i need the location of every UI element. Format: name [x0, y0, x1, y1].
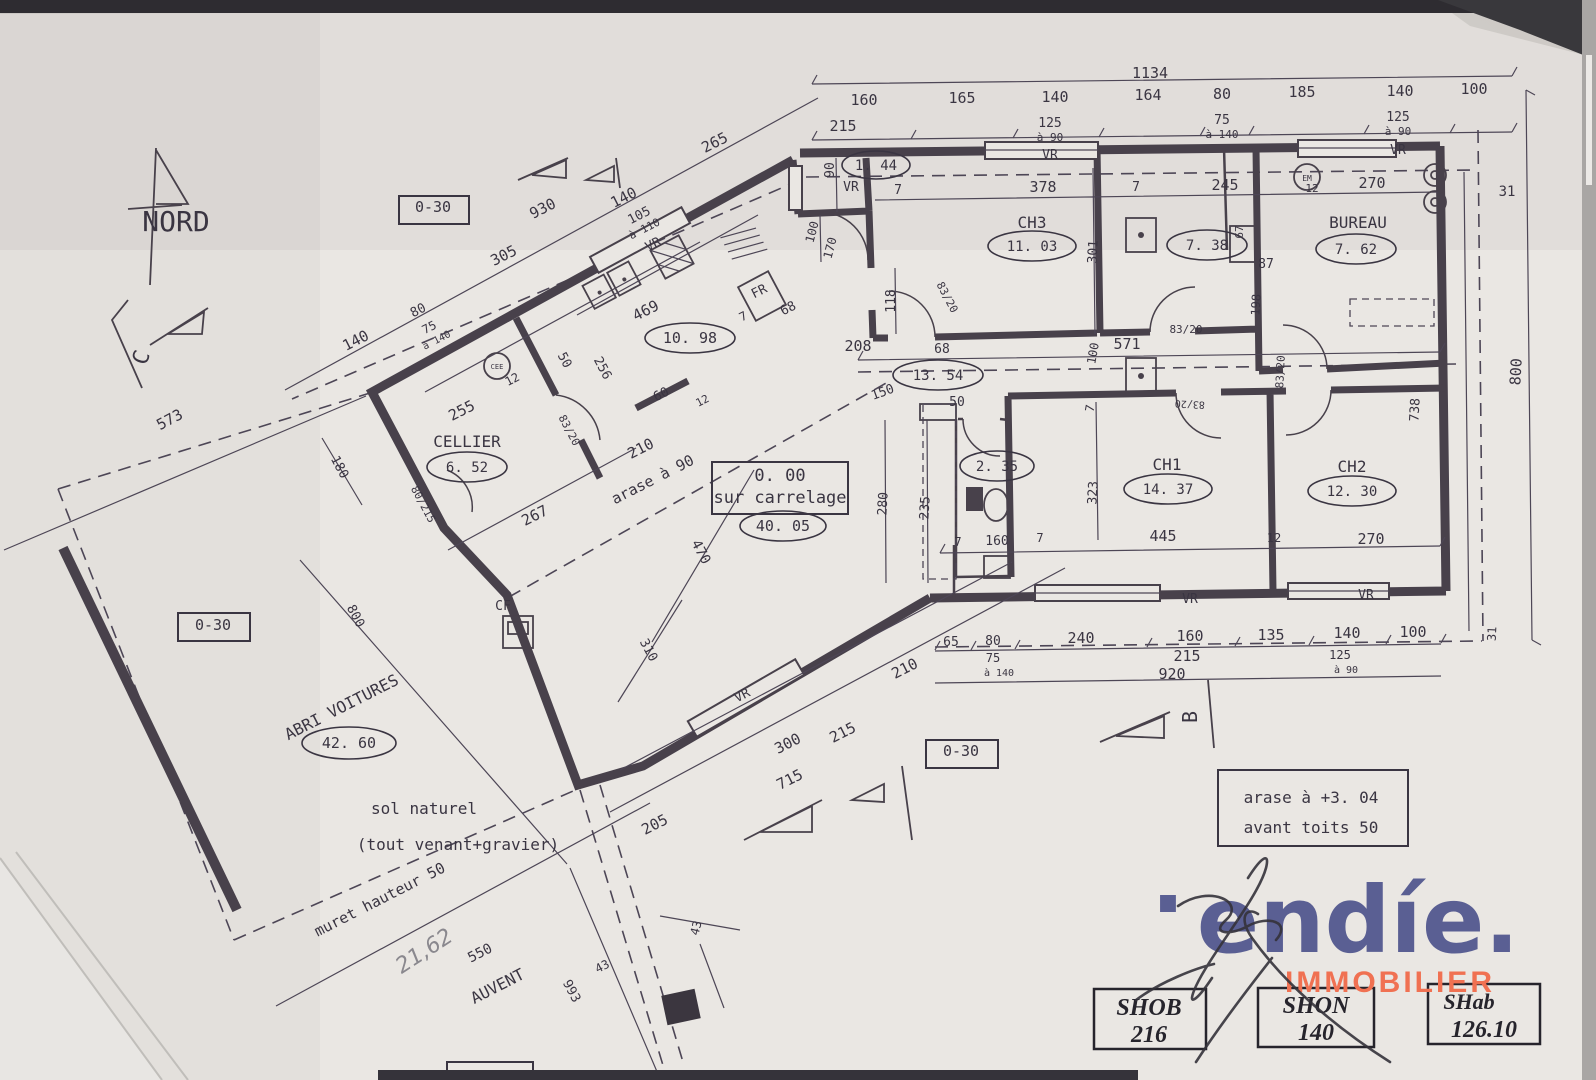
section-b-label: B	[1178, 711, 1202, 723]
dim-50-hall: 50	[949, 395, 965, 410]
room-bath-area: 7. 38	[1186, 238, 1228, 254]
dim-90: 90	[823, 162, 838, 178]
dim-920: 920	[1158, 665, 1185, 683]
room-bureau: BUREAU	[1329, 213, 1387, 232]
photo-edge-top	[0, 0, 1510, 13]
scanned-floor-plan-photo: 113416016514016480185140100215125à 9075à…	[0, 0, 1596, 1080]
photo-edge-bottom	[378, 1070, 1138, 1080]
win-b1-75: 75	[986, 651, 1000, 665]
room-cellier-area: 6. 52	[446, 460, 488, 476]
shob-label: SHOB	[1116, 995, 1181, 1021]
room-entry-area: 1. 44	[855, 158, 897, 174]
room-bureau-area: 7. 62	[1335, 242, 1377, 258]
win-top1-125: 125	[1038, 116, 1061, 131]
dim-235: 235	[917, 496, 933, 520]
door-8320-bath: 83/20	[1169, 323, 1202, 336]
dim-738: 738	[1407, 398, 1423, 422]
dim-67: 67	[1233, 225, 1246, 238]
dim-270-ch2: 270	[1357, 530, 1384, 548]
bottom-vr2: VR	[1358, 588, 1374, 603]
dim-270-bureau: 270	[1358, 174, 1385, 192]
room-ch2: CH2	[1338, 457, 1367, 476]
dim-top-215: 215	[829, 117, 856, 135]
win-top3-a90: à 90	[1385, 125, 1412, 138]
dim-140-bottom: 140	[1333, 624, 1360, 642]
note-sol: sol naturel	[371, 799, 477, 818]
win-top2-75: 75	[1214, 113, 1230, 128]
dim-100-bottom: 100	[1399, 623, 1426, 641]
dim-240: 240	[1067, 629, 1094, 647]
dim-top-160: 160	[850, 91, 877, 109]
dim-68-hall: 68	[934, 342, 950, 357]
room-ch1: CH1	[1153, 455, 1182, 474]
sym-cee-label: CEE	[491, 363, 504, 371]
dim-215-bottom: 215	[1173, 647, 1200, 665]
dim-top-140a: 140	[1041, 88, 1068, 106]
dim-87: 87	[1258, 257, 1274, 272]
room-wc-area: 2. 35	[976, 459, 1018, 475]
dim-160-bottom: 160	[1176, 627, 1203, 645]
window-porch	[789, 166, 802, 210]
room-kitchen-area: 10. 98	[663, 329, 717, 347]
dim-280: 280	[875, 492, 891, 516]
bottom-vr1: VR	[1182, 592, 1198, 607]
door-8320-bureau: 83/20	[1273, 355, 1288, 389]
dim-7a: 7	[894, 183, 902, 198]
dim-7b: 7	[1132, 180, 1140, 195]
room-ch2-area: 12. 30	[1327, 484, 1378, 500]
win-top3-vr: VR	[1390, 143, 1406, 158]
dim-top-164: 164	[1134, 86, 1161, 104]
ref-box-left: 0-30	[195, 616, 231, 634]
dim-378: 378	[1029, 178, 1056, 196]
dim-top-140b: 140	[1386, 82, 1413, 100]
win-b1-a140: à 140	[984, 667, 1014, 679]
win-top3-125: 125	[1386, 110, 1409, 125]
dim-571: 571	[1113, 335, 1140, 353]
shob-value: 216	[1130, 1022, 1167, 1048]
dim-1134: 1134	[1132, 64, 1168, 82]
note-toutvenant: (tout venant+gravier)	[357, 835, 559, 854]
sleeve-glare	[1586, 55, 1592, 185]
logo-tagline: IMMOBILIER	[1285, 966, 1495, 999]
win-b2-125: 125	[1329, 648, 1351, 662]
dim-12-bath: 12	[1305, 182, 1318, 195]
room-living-area: 40. 05	[756, 517, 810, 535]
dim-7-wc1: 7	[954, 535, 961, 549]
room-cellier: CELLIER	[433, 432, 501, 451]
dim-208: 208	[844, 337, 871, 355]
shon-value: 140	[1298, 1020, 1334, 1046]
dim-301: 301	[1085, 240, 1101, 264]
dim-top-165: 165	[948, 89, 975, 107]
dim-65: 65	[943, 635, 959, 650]
dim-323: 323	[1085, 481, 1101, 505]
note-arase304-1: arase à +3. 04	[1244, 788, 1379, 807]
note-arase304-2: avant toits 50	[1244, 818, 1379, 837]
shab-value: 126.10	[1451, 1017, 1517, 1043]
room-carport-area: 42. 60	[322, 734, 376, 752]
wc-dark-fixture	[966, 487, 983, 511]
room-hall-area: 13. 54	[913, 368, 964, 384]
dim-top-100: 100	[1460, 80, 1487, 98]
floor-plan-drawing: 113416016514016480185140100215125à 9075à…	[0, 0, 1596, 1080]
dim-445: 445	[1149, 527, 1176, 545]
ref-box-bottom: 0-30	[943, 742, 979, 760]
win-top1-vr: VR	[1042, 148, 1058, 163]
dim-7-wc2: 7	[1036, 531, 1043, 545]
dim-top-185: 185	[1288, 83, 1315, 101]
dim-135: 135	[1257, 626, 1284, 644]
dim-31-bottom: 31	[1485, 626, 1500, 641]
dim-31-top: 31	[1499, 184, 1516, 200]
room-ch3-area: 11. 03	[1007, 239, 1058, 255]
sym-em-label: EM	[1302, 174, 1312, 183]
dim-800-right: 800	[1506, 358, 1525, 386]
shading-left	[0, 0, 320, 1080]
room-ch3: CH3	[1018, 213, 1047, 232]
ref-box-top: 0-30	[415, 198, 451, 216]
win-b2-a90: à 90	[1334, 664, 1358, 676]
room-ch1-area: 14. 37	[1143, 482, 1194, 498]
dim-198: 198	[1248, 294, 1263, 316]
door-8320-ch1: 83/20	[1175, 397, 1206, 410]
north-label: NORD	[142, 205, 209, 238]
cf-label: CF	[495, 599, 511, 614]
note-carrelage: sur carrelage	[713, 488, 846, 508]
dim-top-80: 80	[1213, 85, 1231, 103]
note-000: 0. 00	[754, 466, 805, 486]
win-top1-a90: à 90	[1037, 131, 1064, 144]
dim-245: 245	[1211, 176, 1238, 194]
win-top2-a140: à 140	[1205, 128, 1238, 141]
dim-12-ch2: 12	[1267, 531, 1281, 545]
dim-160-wc: 160	[985, 534, 1008, 549]
dim-118: 118	[884, 289, 899, 312]
dim-80-bottom: 80	[985, 634, 1001, 649]
entry-vr: VR	[843, 180, 859, 195]
